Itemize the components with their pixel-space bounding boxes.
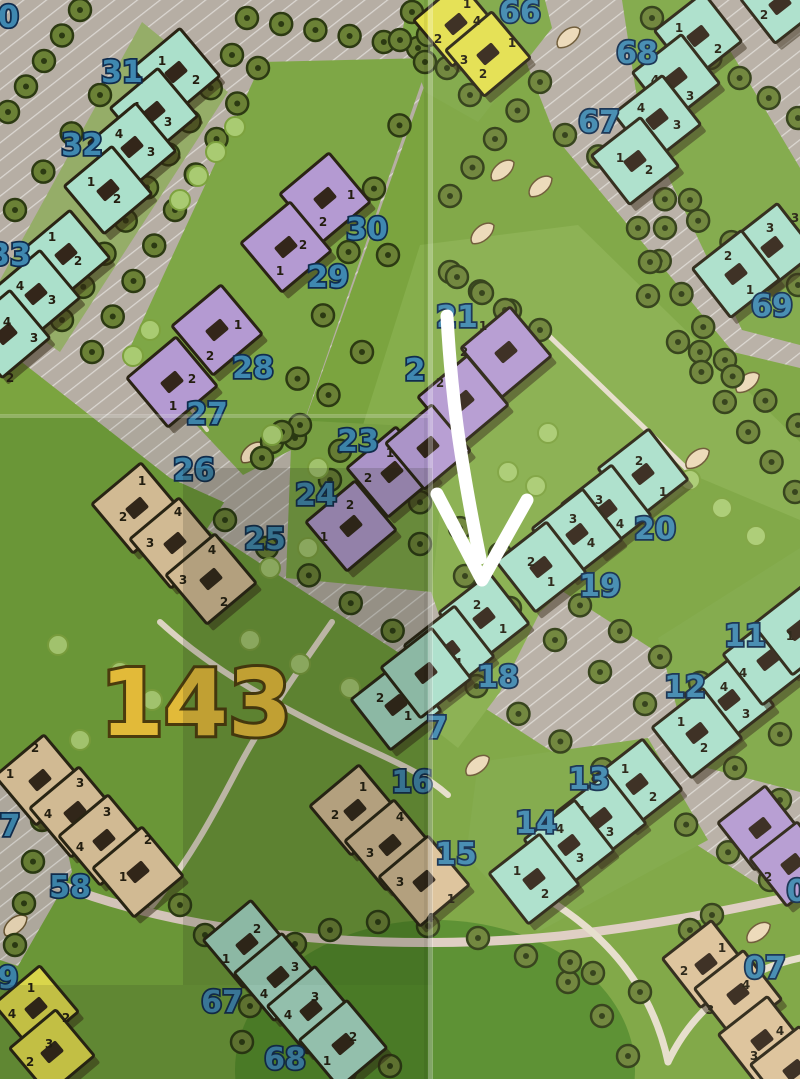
tree-icon (226, 93, 248, 115)
tree-icon (51, 25, 73, 47)
tree-icon (102, 306, 124, 328)
tree-icon (287, 368, 309, 390)
unit-number: 2 (299, 238, 307, 252)
tree-icon (377, 244, 399, 266)
tree-icon (270, 13, 292, 35)
lot-number-label: 31 (101, 55, 143, 90)
tree-icon (69, 0, 91, 21)
bush-icon (123, 346, 143, 366)
unit-number: 2 (74, 254, 82, 268)
unit-number: 1 (48, 230, 56, 244)
unit-number: 1 (347, 188, 355, 202)
tree-icon (351, 341, 373, 363)
unit-number: 4 (16, 279, 24, 293)
unit-number: 3 (48, 293, 56, 307)
unit-number: 2 (113, 192, 121, 206)
site-plan-canvas: 1243431212434321243431233212213434212134… (0, 0, 800, 1079)
bush-icon (206, 142, 226, 162)
unit-number: 4 (115, 127, 123, 141)
unit-number: 1 (234, 318, 242, 332)
unit-number: 2 (192, 73, 200, 87)
tree-icon (81, 341, 103, 363)
lot-number-label: 28 (232, 351, 274, 386)
tree-icon (236, 7, 258, 29)
lot-number-label: 30 (346, 212, 388, 247)
bush-icon (140, 320, 160, 340)
tree-icon (339, 25, 361, 47)
bush-icon (225, 117, 245, 137)
lot-number-label: 29 (307, 260, 349, 295)
bush-icon (170, 190, 190, 210)
tree-icon (4, 199, 26, 221)
tree-icon (389, 114, 411, 136)
tree-icon (221, 44, 243, 66)
unit-number: 3 (164, 115, 172, 129)
unit-number: 2 (206, 349, 214, 363)
tree-icon (304, 19, 326, 41)
tree-icon (15, 76, 37, 98)
unit-number: 1 (169, 399, 177, 413)
unit-number: 1 (276, 264, 284, 278)
lot-number-label: 2 (405, 353, 426, 388)
unit-number: 1 (87, 175, 95, 189)
lot-number-label: 32 (61, 128, 103, 163)
lot-number-label: 40 (0, 0, 19, 35)
tree-icon (389, 29, 411, 51)
tree-icon (0, 101, 19, 123)
unit-number: 2 (188, 372, 196, 386)
tree-icon (33, 50, 55, 72)
unit-number: 3 (30, 331, 38, 345)
unit-number: 1 (158, 54, 166, 68)
lot-number-label: 33 (0, 238, 31, 273)
unit-number: 4 (3, 315, 11, 329)
tree-icon (318, 384, 340, 406)
unit-number: 2 (6, 371, 14, 385)
tree-icon (143, 235, 165, 257)
tree-icon (123, 270, 145, 292)
tree-icon (312, 304, 334, 326)
tree-icon (32, 161, 54, 183)
unit-number: 2 (319, 215, 327, 229)
unit-number: 3 (147, 145, 155, 159)
tree-icon (247, 57, 269, 79)
bush-icon (188, 166, 208, 186)
site-plan-map: 1243431212434321243431233212213434212134… (0, 0, 800, 1079)
